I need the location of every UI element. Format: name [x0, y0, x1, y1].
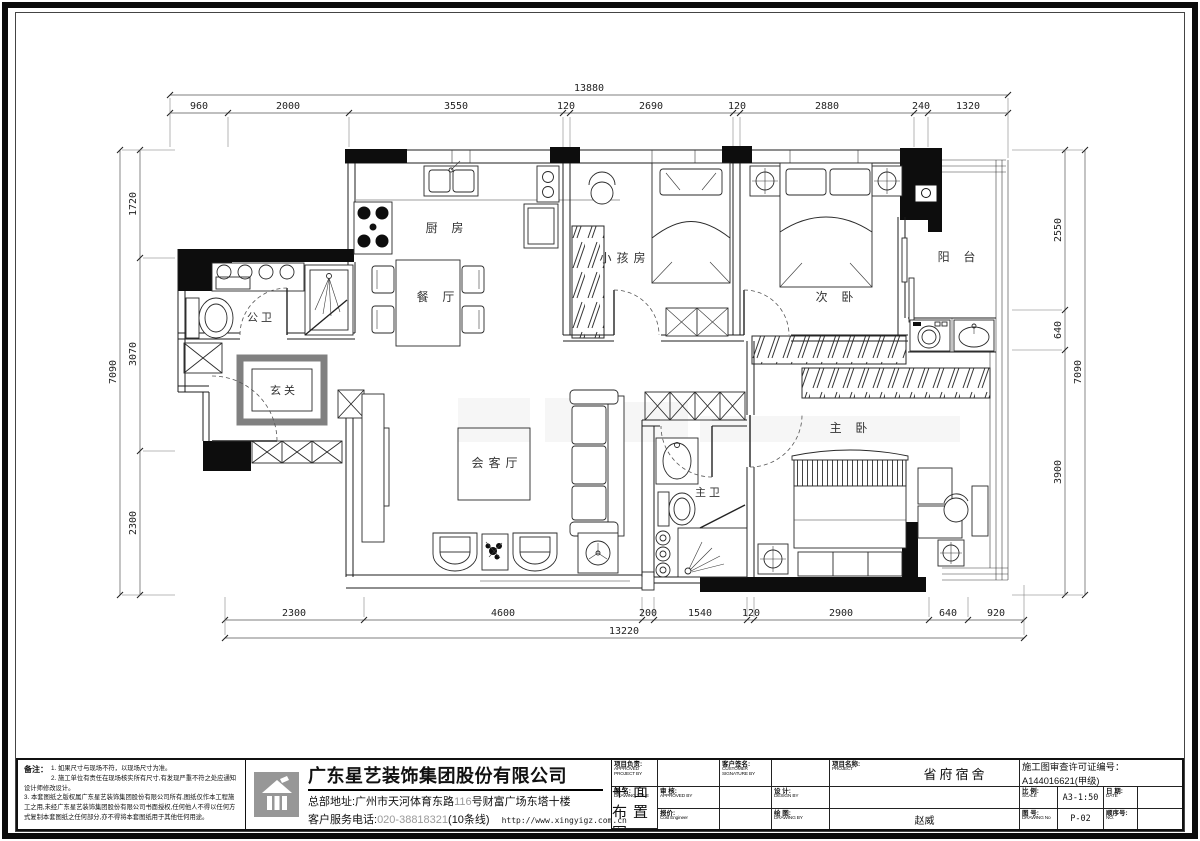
label-dining: 餐 厅: [417, 289, 460, 304]
svg-text:2690: 2690: [639, 101, 663, 112]
shoe-cabinet: [252, 441, 342, 463]
master-bedroom-furniture: [758, 368, 990, 576]
house-icon: [258, 776, 296, 814]
drawing-no-value: P-02: [1058, 809, 1104, 829]
svg-text:640: 640: [939, 608, 957, 619]
second-bedroom-furniture: [750, 163, 906, 364]
svg-text:120: 120: [557, 101, 575, 112]
serial-label-cell: 顺序号: NO.: [1104, 809, 1138, 829]
drawing-title-value: 平面布置图: [612, 787, 657, 828]
drawing-title-cell: 图 名: DRAWING TITLE 平面布置图: [612, 787, 658, 829]
wardrobe: [802, 368, 990, 398]
customer-signature-cell: 客户签名: CUSTOMER SIGNATURE BY: [720, 760, 772, 787]
armchair-symbol-2: [513, 533, 557, 571]
double-bed: [792, 450, 908, 576]
dimensions-top: 13880 960 2000 3550 120 2690 120 2880 24…: [167, 83, 1011, 158]
nightstand-lamp: [758, 544, 788, 574]
svg-text:3070: 3070: [128, 342, 139, 366]
tv-symbol: [384, 428, 389, 506]
laundry-sink-symbol: [954, 320, 994, 351]
company-address: 总部地址:广州市天河体育东路116号财富广场东塔十楼: [308, 793, 603, 809]
toilet-symbol: [658, 492, 669, 526]
wardrobe: [752, 336, 906, 364]
tv-cabinet: [362, 394, 384, 542]
project-lead-cell: 项目负责: APPROVED PROJECT BY: [612, 760, 658, 787]
permit-cell: 施工图审查许可证编号：A144016621(甲级): [1020, 760, 1182, 787]
project-lead-value: [658, 760, 720, 787]
dimensions-left: 1720 3070 2300 7090: [108, 147, 175, 598]
svg-text:3550: 3550: [444, 101, 468, 112]
column-hatch: [184, 343, 364, 418]
notes-title: 备注：: [24, 764, 48, 776]
svg-text:3900: 3900: [1053, 460, 1064, 484]
kitchen-sink-symbol: [424, 166, 478, 196]
label-master-bedroom: 主 卧: [830, 421, 873, 435]
label-kitchen: 厨 房: [426, 220, 469, 235]
label-entry: 玄关: [270, 383, 298, 397]
desk-chair: [591, 182, 613, 204]
wardrobe: [572, 226, 604, 338]
serial-value: [1138, 809, 1182, 829]
desk-chair: [944, 498, 968, 522]
side-table-lamp: [578, 533, 618, 573]
company-cell: 广东星艺装饰集团股份有限公司 总部地址:广州市天河体育东路116号财富广场东塔十…: [246, 760, 612, 829]
company-website: http://www.xingyigz.com.cn: [502, 816, 627, 825]
kids-room-furniture: [572, 163, 730, 338]
svg-text:13220: 13220: [609, 626, 639, 637]
drawing-no-row: 图 号: DRAWING No P-02 顺序号: NO.: [1020, 809, 1182, 829]
approved-by-value: [720, 787, 772, 809]
design-by-cell: 设 计: DESIGN BY: [772, 787, 830, 809]
washing-machine-symbol: [910, 320, 950, 351]
note-line-2: 2. 施工单位有责任在现场核实所有尺寸,有发现严重不符之处应通知设计师修改设计。: [24, 774, 239, 794]
nightstand-lamp: [872, 166, 902, 196]
label-public-bathroom: 公卫: [247, 311, 275, 324]
note-line-1: 1. 如果尺寸与现场不符，以现场尺寸为准。: [24, 764, 239, 774]
quote-cell: 报价: Cost Engineer: [658, 809, 720, 829]
svg-text:2000: 2000: [276, 101, 300, 112]
svg-text:4600: 4600: [491, 608, 515, 619]
svg-text:2550: 2550: [1053, 218, 1064, 242]
quote-value: [720, 809, 772, 829]
drawing-no-label-cell: 图 号: DRAWING No: [1020, 809, 1058, 829]
svg-text:2900: 2900: [829, 608, 853, 619]
date-label-cell: 日 期: DATE: [1104, 787, 1138, 808]
svg-text:2880: 2880: [815, 101, 839, 112]
project-name-value: 省府宿舍: [892, 760, 1019, 786]
svg-text:120: 120: [742, 608, 760, 619]
label-living-room: 会客厅: [471, 455, 522, 470]
svg-text:640: 640: [1053, 321, 1064, 339]
label-second-bedroom: 次 卧: [816, 290, 859, 304]
label-balcony: 阳 台: [938, 249, 981, 264]
svg-text:1540: 1540: [688, 608, 712, 619]
customer-signature-value: [772, 760, 830, 787]
svg-text:240: 240: [912, 101, 930, 112]
svg-text:2300: 2300: [282, 608, 306, 619]
low-cabinet: [666, 308, 728, 336]
notes-cell: 备注： 1. 如果尺寸与现场不符，以现场尺寸为准。 2. 施工单位有责任在现场核…: [18, 760, 246, 829]
dimensions-right: 2550 640 3900 7090: [1012, 147, 1088, 598]
label-kids-room: 小孩房: [599, 250, 650, 265]
scale-label-cell: 比 例: SCALE: [1020, 787, 1058, 808]
company-name: 广东星艺装饰集团股份有限公司: [308, 762, 603, 791]
shower-symbol: [305, 265, 353, 335]
scale-value: A3-1:50: [1058, 787, 1104, 808]
dimensions-bottom: 2300 4600 200 1540 120 2900 640 920 1322…: [222, 585, 1027, 641]
svg-text:1320: 1320: [956, 101, 980, 112]
company-logo: [254, 772, 299, 817]
project-name-cell: 项目名称: PROJECT 省府宿舍: [830, 760, 1020, 787]
floor-plan: 13880 960 2000 3550 120 2690 120 2880 24…: [0, 0, 1200, 745]
plant-stand: [482, 534, 508, 570]
label-master-bathroom: 主卫: [695, 486, 723, 499]
drawing-sheet: 13880 960 2000 3550 120 2690 120 2880 24…: [0, 0, 1200, 841]
svg-text:13880: 13880: [574, 83, 604, 94]
nightstand-lamp: [938, 540, 964, 566]
svg-text:960: 960: [190, 101, 208, 112]
scale-row: 比 例: SCALE A3-1:50 日 期: DATE: [1020, 787, 1182, 809]
drawing-by-cell: 绘 图: DRAWING BY: [772, 809, 830, 829]
svg-text:920: 920: [987, 608, 1005, 619]
svg-text:7090: 7090: [108, 360, 119, 384]
svg-text:1720: 1720: [128, 192, 139, 216]
drawing-by-value: 赵威: [830, 809, 1020, 829]
date-value: [1138, 787, 1182, 808]
svg-text:7090: 7090: [1073, 360, 1084, 384]
toilet-symbol: [186, 298, 199, 338]
title-block: 备注： 1. 如果尺寸与现场不符，以现场尺寸为准。 2. 施工单位有责任在现场核…: [16, 758, 1184, 831]
svg-text:2300: 2300: [128, 511, 139, 535]
nightstand-lamp: [750, 166, 780, 196]
design-by-value: [830, 787, 1020, 809]
company-phone: 客户服务电话:020-38818321(10条线)http://www.xing…: [308, 811, 603, 827]
title-block-grid: 项目负责: APPROVED PROJECT BY 客户签名: CUSTOMER…: [612, 760, 1182, 829]
approved-by-cell: 审 核: APPROVED BY: [658, 787, 720, 809]
sofa-symbol: [570, 390, 624, 536]
armchair-symbol: [433, 533, 477, 571]
note-line-3: 3. 本套图纸之版权属广东星艺装饰集团股份有限公司所有,图纸仅作本工程施工之用,…: [24, 793, 239, 822]
master-bathroom-fixtures: [656, 438, 747, 577]
svg-text:200: 200: [639, 608, 657, 619]
vanity-counter: [656, 438, 698, 484]
desk: [972, 486, 988, 536]
shower-symbol: [678, 528, 747, 577]
svg-text:120: 120: [728, 101, 746, 112]
